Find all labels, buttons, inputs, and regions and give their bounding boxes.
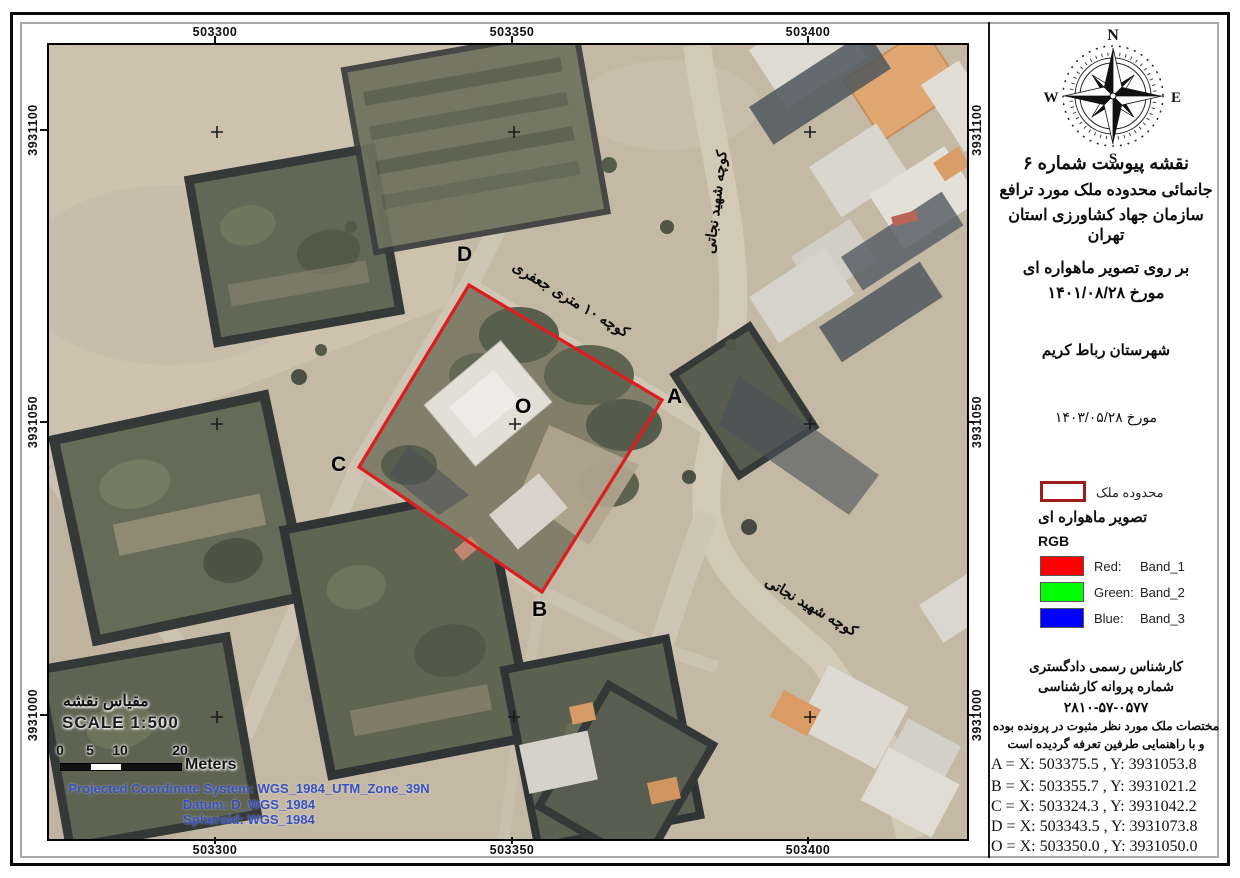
- scalebar-tick-10: 10: [105, 742, 135, 758]
- scalebar-tick-5: 5: [75, 742, 105, 758]
- grid-label-bottom-503400: 503400: [776, 843, 840, 857]
- expert-line-2: شماره پروانه کارشناسی: [992, 679, 1220, 695]
- projection-line-1: Projected Coordinate System: WGS_1984_UT…: [49, 781, 449, 796]
- legend-blue-swatch: [1040, 608, 1084, 628]
- title-line-3: سازمان جهاد کشاورزی استان تهران: [992, 205, 1220, 245]
- legend-boundary-swatch: [1040, 481, 1086, 502]
- compass-n: N: [1107, 27, 1119, 44]
- point-label-C: C: [331, 453, 346, 477]
- coordinate-line-D: D = X: 503343.5 , Y: 3931073.8: [991, 818, 1231, 836]
- map-sheet: D A B C O کوچه ۱۰ متری جعفری کوچه شهید ن…: [0, 0, 1240, 878]
- expert-line-4: مختصات ملک مورد نظر مثبوت در پرونده بوده: [992, 719, 1220, 733]
- point-label-A: A: [667, 385, 682, 409]
- coordinate-line-A: A = X: 503375.5 , Y: 3931053.8: [991, 756, 1231, 774]
- scalebar-tick-0: 0: [47, 742, 75, 758]
- legend-green-label: Green:Band_2: [1094, 585, 1185, 600]
- grid-label-left-3931100: 3931100: [26, 98, 40, 162]
- legend-boundary-label: محدوده ملک: [1096, 485, 1216, 501]
- legend-red-swatch: [1040, 556, 1084, 576]
- title-line-5: مورخ ۱۴۰۱/۰۸/۲۸: [992, 283, 1220, 303]
- satellite-scene: [49, 45, 967, 839]
- title-line-6: شهرستان رباط کریم: [992, 341, 1220, 359]
- compass-rose: N S W E: [1040, 24, 1186, 174]
- compass-w: W: [1044, 90, 1059, 106]
- scale-label-farsi: مقیاس نقشه: [63, 691, 149, 711]
- expert-line-5: و با راهنمایی طرفین تعرفه گردیده است: [992, 737, 1220, 751]
- point-label-D: D: [457, 243, 472, 267]
- grid-label-left-3931050: 3931050: [26, 390, 40, 454]
- projection-line-3: Spheroid: WGS_1984: [49, 812, 449, 827]
- legend-red-label: Red:Band_1: [1094, 559, 1185, 574]
- title-line-4: بر روی تصویر ماهواره ای: [992, 258, 1220, 278]
- scale-text: SCALE 1:500: [62, 713, 179, 733]
- title-line-1: نقشه پیوست شماره ۶: [992, 153, 1220, 174]
- compass-e: E: [1171, 90, 1181, 106]
- legend-satellite-label: تصویر ماهواره ای: [1038, 508, 1188, 526]
- scalebar-unit: Meters: [185, 756, 237, 774]
- title-line-2: جانمائی محدوده ملک مورد ترافع: [992, 180, 1220, 200]
- point-label-O: O: [515, 395, 531, 419]
- grid-label-left-3931000: 3931000: [26, 683, 40, 747]
- legend-green-swatch: [1040, 582, 1084, 602]
- satellite-map-area: D A B C O کوچه ۱۰ متری جعفری کوچه شهید ن…: [47, 43, 969, 841]
- expert-line-1: کارشناس رسمی دادگستری: [992, 659, 1220, 675]
- expert-license-number: ۲۸۱۰-۵۷-۰۵۷۷: [992, 699, 1220, 716]
- coordinate-line-B: B = X: 503355.7 , Y: 3931021.2: [991, 778, 1231, 796]
- grid-label-bottom-503350: 503350: [480, 843, 544, 857]
- grid-label-bottom-503300: 503300: [183, 843, 247, 857]
- coordinate-line-C: C = X: 503324.3 , Y: 3931042.2: [991, 798, 1231, 816]
- projection-line-2: Datum: D_WGS_1984: [49, 797, 449, 812]
- sidebar-separator: [988, 22, 990, 858]
- legend-blue-label: Blue:Band_3: [1094, 611, 1185, 626]
- point-label-B: B: [532, 598, 547, 622]
- coordinate-line-O: O = X: 503350.0 , Y: 3931050.0: [991, 838, 1231, 856]
- scale-bar: [60, 763, 182, 771]
- title-line-7: مورخ ۱۴۰۳/۰۵/۲۸: [992, 409, 1220, 426]
- legend-rgb-label: RGB: [1038, 533, 1069, 549]
